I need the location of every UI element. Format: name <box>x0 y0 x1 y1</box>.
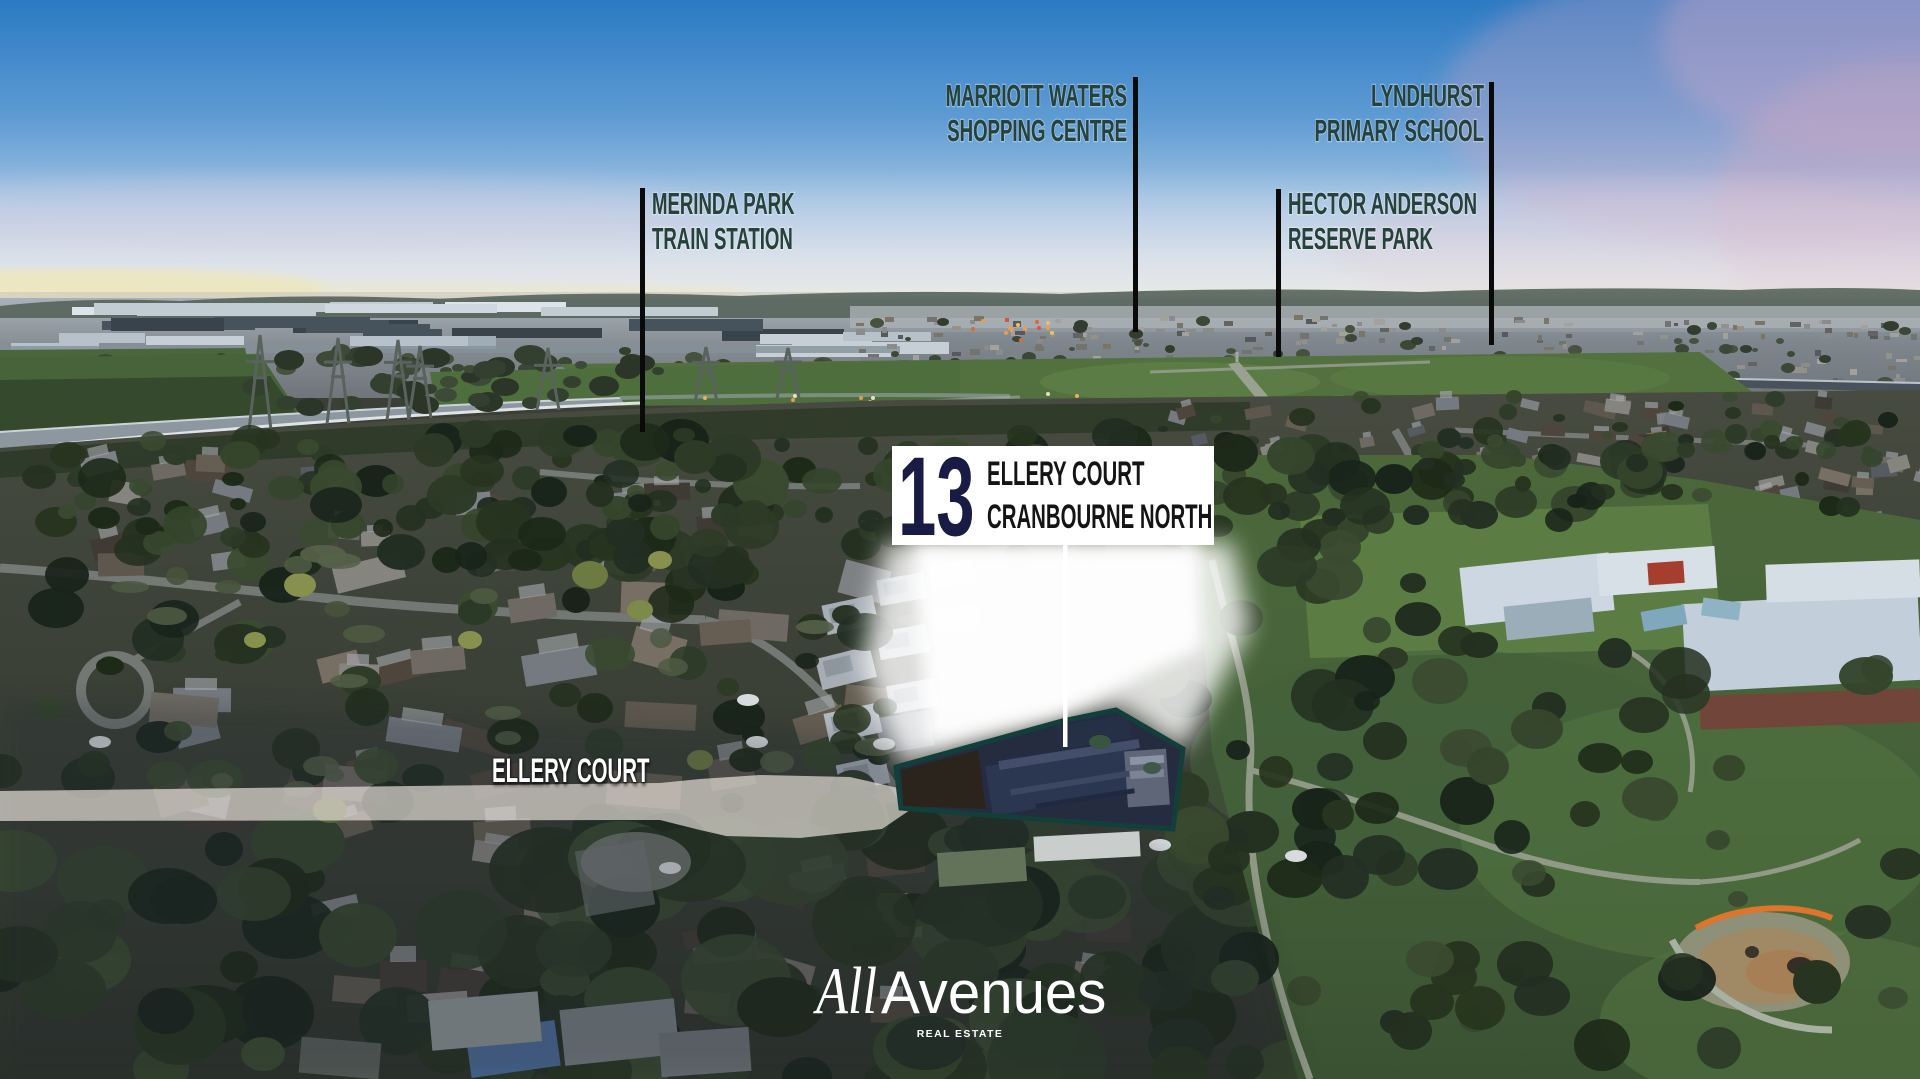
svg-text:MARRIOTT WATERS: MARRIOTT WATERS <box>946 79 1127 113</box>
svg-text:13: 13 <box>898 434 975 559</box>
svg-text:All: All <box>813 953 877 1028</box>
svg-text:RESERVE PARK: RESERVE PARK <box>1288 222 1433 256</box>
svg-text:ELLERY COURT: ELLERY COURT <box>987 455 1144 493</box>
svg-text:SHOPPING CENTRE: SHOPPING CENTRE <box>947 114 1127 148</box>
svg-text:LYNDHURST: LYNDHURST <box>1371 79 1484 113</box>
svg-text:TRAIN STATION: TRAIN STATION <box>652 222 793 256</box>
svg-text:HECTOR ANDERSON: HECTOR ANDERSON <box>1288 187 1477 221</box>
svg-text:MERINDA PARK: MERINDA PARK <box>652 187 795 221</box>
svg-text:CRANBOURNE NORTH: CRANBOURNE NORTH <box>987 498 1212 536</box>
svg-text:ELLERY COURT: ELLERY COURT <box>492 752 649 790</box>
svg-text:Avenues: Avenues <box>881 958 1106 1026</box>
svg-text:PRIMARY SCHOOL: PRIMARY SCHOOL <box>1315 114 1484 148</box>
svg-text:REAL ESTATE: REAL ESTATE <box>917 1028 1004 1040</box>
